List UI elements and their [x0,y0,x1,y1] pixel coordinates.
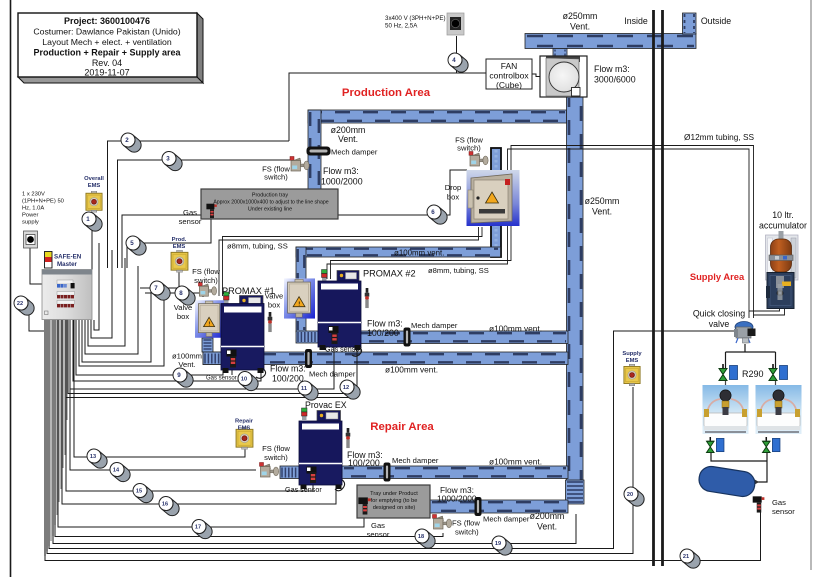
svg-text:Vent.: Vent. [592,207,612,217]
svg-text:Approx 2000x1000x400 to adjust: Approx 2000x1000x400 to adjust to the li… [213,200,328,206]
svg-text:9: 9 [177,372,181,379]
svg-text:1000/2000: 1000/2000 [437,494,477,504]
svg-text:box: box [268,301,280,310]
svg-text:Production Area: Production Area [342,87,431,99]
svg-text:box: box [177,312,189,321]
svg-text:7: 7 [154,285,158,292]
svg-text:ø100mm vent.: ø100mm vent. [394,249,444,258]
svg-text:Repair: Repair [235,419,254,425]
svg-text:3: 3 [166,156,170,163]
svg-text:(1PH+N+PE) 50: (1PH+N+PE) 50 [22,199,64,205]
svg-text:Quick closing: Quick closing [693,309,745,319]
svg-text:Prod.: Prod. [172,237,187,243]
svg-text:1 x 230V: 1 x 230V [22,192,45,198]
svg-text:sensor: sensor [367,530,390,539]
svg-text:EMS: EMS [238,426,251,432]
svg-text:Gas sensor: Gas sensor [206,376,237,382]
svg-text:Mech damper: Mech damper [411,321,458,330]
svg-text:13: 13 [90,454,96,460]
svg-text:Master: Master [57,261,78,268]
svg-text:FAN: FAN [501,61,518,71]
svg-text:Repair Area: Repair Area [370,421,434,433]
svg-text:Overall: Overall [84,176,104,182]
svg-text:Costumer: Dawlance Pakistan (U: Costumer: Dawlance Pakistan (Unido) [33,27,180,37]
svg-text:ø100mm vent.: ø100mm vent. [489,457,542,467]
svg-text:11: 11 [301,386,307,392]
svg-text:Project: 3600100476: Project: 3600100476 [64,16,150,26]
svg-text:Supply Area: Supply Area [690,271,745,282]
svg-text:5: 5 [130,240,134,247]
svg-text:Rev. 04: Rev. 04 [92,58,122,68]
svg-text:Layout Mech + elect. + ventila: Layout Mech + elect. + ventilation [42,37,172,47]
svg-text:1000/2000: 1000/2000 [321,177,363,187]
svg-text:10 ltr.: 10 ltr. [772,210,794,220]
svg-text:Vent.: Vent. [537,522,557,532]
svg-text:Flow m3:: Flow m3: [594,64,630,74]
svg-text:switch): switch) [457,144,481,153]
svg-text:8: 8 [179,290,183,297]
svg-text:switch): switch) [194,276,218,285]
svg-text:14: 14 [113,468,120,474]
svg-text:Mech damper: Mech damper [309,370,356,379]
svg-text:Power: Power [22,213,39,219]
svg-text:PROMAX #2: PROMAX #2 [363,269,416,279]
svg-text:4: 4 [452,57,456,64]
svg-text:12: 12 [343,385,349,391]
svg-text:3000/6000: 3000/6000 [594,75,636,85]
svg-text:ø100mm vent.: ø100mm vent. [385,365,438,375]
svg-text:100/200: 100/200 [348,458,380,468]
svg-text:20: 20 [627,492,633,498]
svg-text:(Cube): (Cube) [496,80,522,90]
svg-text:Flow m3:: Flow m3: [323,166,359,176]
svg-text:Flow m3:: Flow m3: [270,364,306,374]
svg-text:FS (flow: FS (flow [452,519,480,528]
svg-text:sensor: sensor [772,507,795,516]
svg-text:Gas sensor: Gas sensor [325,345,362,354]
svg-text:19: 19 [495,541,501,547]
svg-text:100/200: 100/200 [367,328,399,338]
svg-text:EMS: EMS [88,183,101,189]
svg-text:box: box [447,193,459,202]
svg-text:switch): switch) [264,453,288,462]
svg-text:valve: valve [709,319,730,329]
svg-text:Gas: Gas [183,208,197,217]
svg-text:1: 1 [86,216,90,223]
svg-text:switch): switch) [264,173,288,182]
svg-text:2: 2 [125,137,129,144]
svg-text:15: 15 [136,489,142,495]
svg-text:Inside: Inside [624,16,648,26]
svg-text:10: 10 [241,377,247,383]
svg-text:ø250mm: ø250mm [563,11,598,21]
svg-text:Vent.: Vent. [338,134,358,144]
svg-text:Supply: Supply [622,351,642,357]
svg-text:Drop: Drop [445,183,461,192]
svg-text:50 Hz, 2,5A: 50 Hz, 2,5A [385,23,418,30]
svg-text:Flow m3:: Flow m3: [367,319,403,329]
svg-text:2019-11-07: 2019-11-07 [84,68,129,78]
svg-text:sensor: sensor [179,217,202,226]
svg-text:Valve: Valve [265,292,283,301]
svg-text:designed on site): designed on site) [373,505,416,511]
svg-text:EMS: EMS [626,358,639,364]
svg-text:Hz, 1.0A: Hz, 1.0A [22,206,44,212]
svg-text:22: 22 [17,301,23,307]
svg-text:EMS: EMS [173,244,186,250]
svg-text:21: 21 [683,554,689,560]
svg-text:switch): switch) [455,528,479,537]
svg-text:ø8mm, tubing, SS: ø8mm, tubing, SS [428,266,489,275]
svg-text:3x400 V (3PH+N+PE): 3x400 V (3PH+N+PE) [385,15,446,22]
svg-text:SAFE-EN: SAFE-EN [54,254,82,261]
svg-text:17: 17 [195,525,201,531]
svg-text:6: 6 [431,209,435,216]
svg-text:Gas: Gas [772,498,786,507]
svg-text:Mech damper: Mech damper [331,148,378,157]
svg-text:Provac EX: Provac EX [305,400,347,410]
svg-text:Mech damper: Mech damper [392,456,439,465]
svg-text:controlbox: controlbox [489,71,529,81]
svg-text:ø100mm vent.: ø100mm vent. [489,324,542,334]
svg-text:Tray under Product: Tray under Product [370,491,418,497]
svg-text:Vent.: Vent. [570,22,590,32]
svg-text:Gas: Gas [371,521,385,530]
svg-text:Ø12mm tubing, SS: Ø12mm tubing, SS [684,132,755,142]
svg-text:for emptying (to be: for emptying (to be [371,498,418,504]
svg-text:ø200mm: ø200mm [530,511,565,521]
svg-text:Mech damper: Mech damper [483,515,530,524]
svg-text:18: 18 [418,534,424,540]
svg-text:Outside: Outside [701,16,731,26]
svg-text:16: 16 [162,502,168,508]
svg-text:R290: R290 [742,369,764,379]
svg-text:Production + Repair + Supply a: Production + Repair + Supply area [33,48,181,58]
svg-text:ø250mm: ø250mm [585,196,620,206]
svg-text:Gas sensor: Gas sensor [285,485,322,494]
svg-text:supply: supply [22,220,39,226]
svg-text:ø8mm, tubing, SS: ø8mm, tubing, SS [227,242,288,251]
svg-text:FS (flow: FS (flow [192,267,220,276]
svg-text:accumulator: accumulator [759,221,807,231]
svg-text:Under existing line: Under existing line [248,207,292,213]
svg-text:100/200: 100/200 [272,374,304,384]
svg-text:Production tray: Production tray [252,193,289,199]
svg-text:FS (flow: FS (flow [262,444,290,453]
